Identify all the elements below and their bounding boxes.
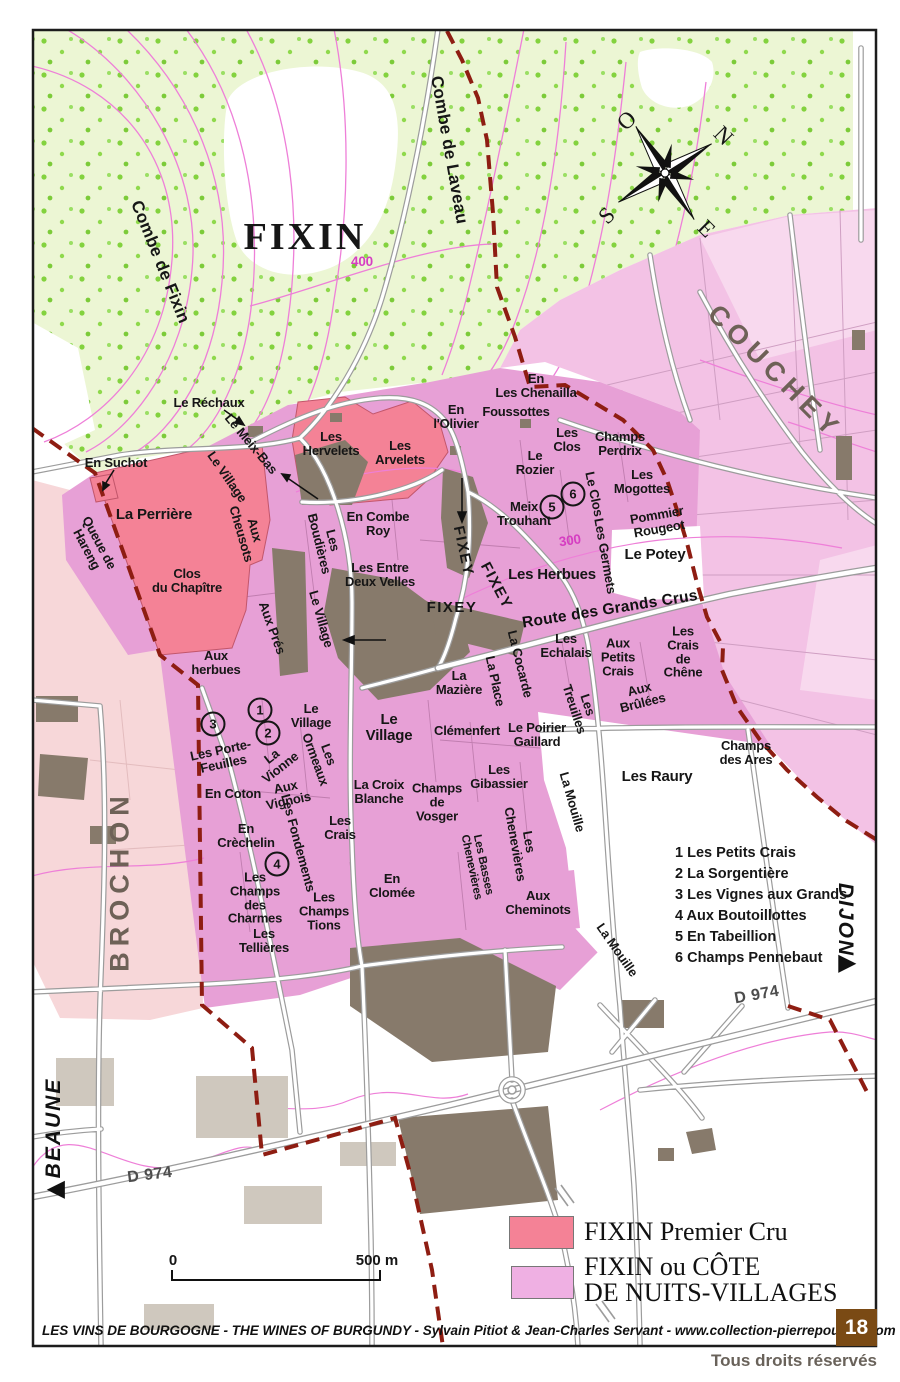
place-label-fixin: FIXIN [244,217,367,257]
vineyard-label-les-crais: Les Crais [324,814,356,842]
vineyard-label-en-chenailla: En Les Chenailla [495,372,576,400]
legend-label-premier-cru: FIXIN Premier Cru [584,1219,788,1245]
vineyard-label-en-combe-roy: En Combe Roy [347,510,410,538]
vineyard-label-la-maziere: La Mazière [436,669,482,697]
vineyard-label-le-rozier: Le Rozier [516,449,555,477]
legend-label-villages: FIXIN ou CÔTE DE NUITS-VILLAGES [584,1254,837,1306]
place-label-le-potey: Le Potey [625,547,686,563]
vineyard-label-clemenfert: Clémenfert [434,724,500,738]
vineyard-label-les-tellieres: Les Tellières [239,927,289,955]
footer-credit-line: LES VINS DE BOURGOGNE - THE WINES OF BUR… [42,1324,896,1338]
vineyard-label-les-mogottes: Les Mogottes [614,468,670,496]
vineyard-label-en-lolivier: En l'Olivier [433,403,478,431]
vineyard-label-les-echalais: Les Echalais [540,632,591,660]
vineyard-label-champs-de-vosger: Champs de Vosger [412,781,462,822]
numbered-circle-1: 1 [248,698,273,723]
numbered-circle-2: 2 [256,721,281,746]
vineyard-label-les-clos: Les Clos [553,426,580,454]
vineyard-label-entre-deux-velles: Les Entre Deux Velles [345,561,415,589]
vineyard-label-aux-herbues: Aux herbues [191,649,240,677]
key-list-item-2: 2 La Sorgentière [675,867,789,882]
vineyard-label-en-coton: En Coton [205,787,261,801]
vineyard-label-les-gibassier: Les Gibassier [470,763,527,791]
direction-label-beaune: BEAUNE [43,1078,65,1179]
numbered-circle-3: 3 [201,712,226,737]
page-number-box: 18 [836,1309,877,1346]
dijon-arrow-icon: ▶ [839,950,856,973]
vineyard-label-aux-cheminots: Aux Cheminots [505,889,570,917]
numbered-circle-6: 6 [561,482,586,507]
vineyard-label-en-suchot: En Suchot [85,456,147,470]
key-list-item-5: 5 En Tabeillion [675,930,776,945]
place-label-brochon: BROCHON [106,790,135,972]
place-label-fixey-3: FIXEY [427,600,478,616]
vineyard-label-en-clomee: En Clomée [369,872,415,900]
map-page: FIXIN COUCHEY BROCHON BEAUNE ◀ DIJON ▶ F… [0,0,900,1382]
beaune-arrow-icon: ◀ [48,1176,65,1199]
contour-label-400: 400 [351,255,373,269]
vineyard-label-les-hervelets: Les Hervelets [303,430,360,458]
vineyard-label-les-crais-de-chene: Les Crais de Chêne [664,624,703,679]
key-list-item-4: 4 Aux Boutoillottes [675,909,807,924]
vineyard-label-la-perriere: La Perrière [116,507,192,523]
vineyard-label-le-poirier-gaillard: Le Poirier Gaillard [508,721,566,749]
vineyard-label-foussottes: Foussottes [482,405,549,419]
vineyard-label-les-raury: Les Raury [622,769,693,785]
numbered-circle-4: 4 [265,852,290,877]
key-list-item-3: 3 Les Vignes aux Grands [675,888,847,903]
vineyard-label-champs-perdrix: Champs Perdrix [595,430,645,458]
vineyard-label-les-champs-des-charmes: Les Champs des Charmes [228,870,282,925]
key-list-item-6: 6 Champs Pennebaut [675,951,822,966]
scale-zero-label: 0 [169,1253,177,1268]
vineyard-label-clos-du-chapitre: Clos du Chapître [152,567,222,595]
vineyard-label-les-arvelets: Les Arvelets [375,439,425,467]
vineyard-label-champs-des-ares: Champs des Ares [720,739,773,767]
vineyard-label-le-village-big: Le Village [366,712,413,744]
contour-label-300: 300 [558,532,582,549]
scale-distance-label: 500 m [356,1253,399,1268]
vineyard-label-la-croix-blanche: La Croix Blanche [354,778,404,806]
rights-notice: Tous droits réservés [711,1352,877,1369]
vineyard-label-les-champs-tions: Les Champs Tions [299,890,349,931]
vineyard-label-les-herbues: Les Herbues [508,567,596,583]
legend-swatch-villages [511,1266,574,1299]
key-list-item-1: 1 Les Petits Crais [675,846,796,861]
vineyard-label-en-crechelin: En Crèchelin [217,822,274,850]
vineyard-label-aux-petits-crais: Aux Petits Crais [601,636,635,677]
legend-swatch-premier-cru [509,1216,574,1249]
vineyard-label-le-rechaux: Le Réchaux [174,396,245,410]
